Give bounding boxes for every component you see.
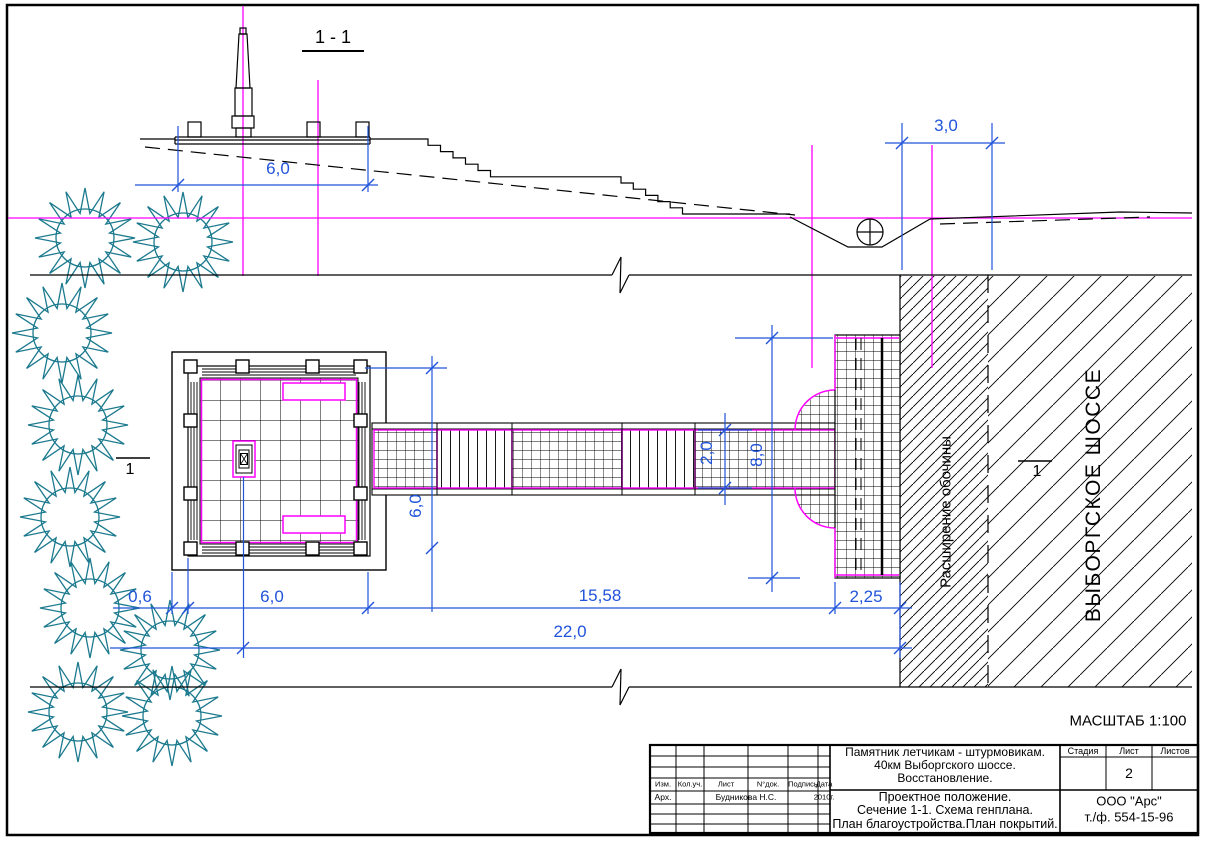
tb-project-line3: Восстановление.	[897, 771, 992, 785]
flowerbed-bottom	[283, 516, 345, 533]
dim-walkway-width: 2,0	[697, 441, 717, 465]
road-label: ВЫБОРГСКОЕ ШОССЕ	[1082, 368, 1106, 622]
tb-project-line2: 40км Выборгского шоссе.	[874, 758, 1016, 772]
flowerbed-top	[283, 383, 345, 400]
tb-content-line1: Проектное положение.	[879, 790, 1012, 804]
section-title: 1 - 1	[302, 27, 364, 52]
tb-row-role: Арх.	[655, 792, 672, 802]
tb-row-date: 2010г.	[814, 793, 835, 802]
dim-square: 6,0	[260, 587, 284, 607]
dim-total: 22,0	[553, 622, 586, 642]
dim-shoulder: 2,25	[849, 587, 882, 607]
tb-row-name: Будникова Н.С.	[716, 792, 777, 802]
monument-platform-plan	[172, 352, 386, 570]
tb-phone: т./ф. 554-15-96	[1085, 810, 1174, 825]
section-mark-right: 1	[1033, 463, 1042, 481]
tb-content-line2: Сечение 1-1. Схема генплана.	[857, 803, 1033, 817]
tb-content-line3: План благоустройства.План покрытий.	[832, 817, 1057, 831]
dim-edge: 0,6	[128, 587, 152, 607]
slope-steps	[370, 139, 790, 214]
tb-stage-header: Стадия	[1068, 746, 1099, 756]
section-mark-left: 1	[126, 461, 135, 479]
dim-ditch-width: 3,0	[934, 116, 958, 136]
drawing-canvas	[0, 0, 1207, 841]
entrance-pad-plan	[835, 335, 900, 578]
drawing-sheet: 1 - 1 6,0 3,0 6,0 2,0 8,0 0,6 6,0 15,58 …	[0, 0, 1207, 841]
tb-company: ООО "Арс"	[1096, 794, 1162, 809]
tb-col-podpis: Подпись	[788, 780, 818, 789]
tb-project-line1: Памятник летчикам - штурмовикам.	[845, 745, 1045, 759]
scale-label: МАСШТАБ 1:100	[1070, 713, 1187, 730]
section-view	[140, 28, 1192, 247]
tb-col-izm: Изм.	[655, 780, 671, 789]
tb-col-ndok: N°док.	[757, 780, 779, 789]
dim-walkway: 15,58	[579, 586, 622, 606]
obelisk-plan-symbol	[233, 441, 255, 477]
tb-sheets-header: Листов	[1160, 746, 1189, 756]
tb-col-data: Дата	[816, 780, 833, 789]
dim-pad-length: 8,0	[747, 443, 767, 467]
tb-col-list: Лист	[718, 780, 734, 789]
tb-sheet-header: Лист	[1119, 746, 1139, 756]
tb-sheet-number: 2	[1125, 765, 1133, 781]
dim-square-side: 6,0	[406, 494, 426, 518]
tb-col-koluch: Кол.уч.	[678, 780, 703, 789]
dim-platform-width: 6,0	[266, 159, 290, 179]
shoulder-label: Расширение обочины	[938, 436, 955, 588]
